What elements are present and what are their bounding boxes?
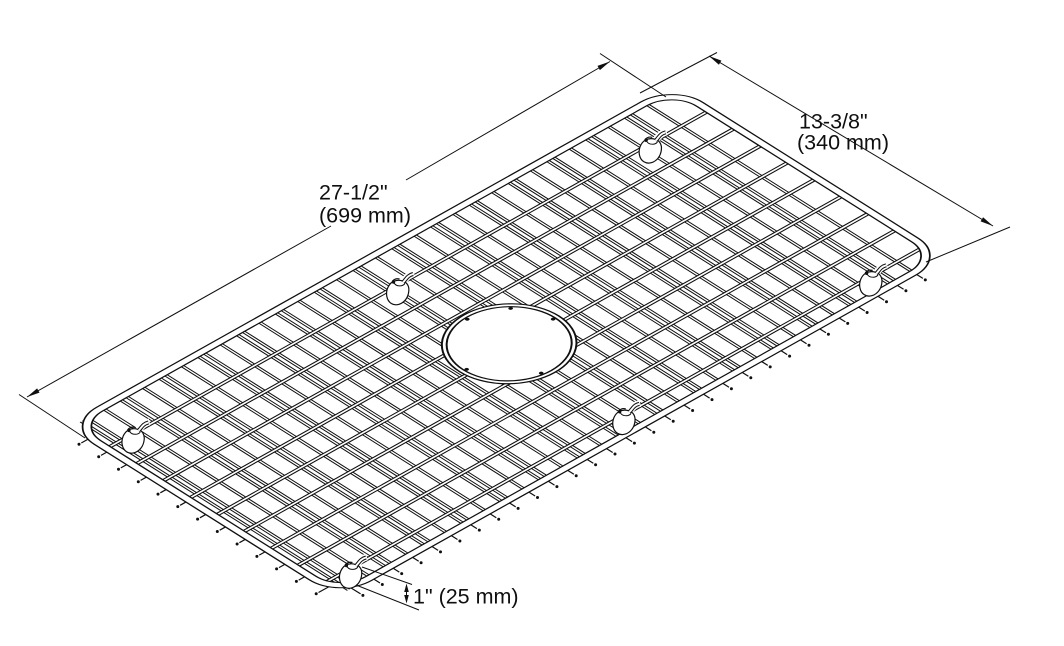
svg-text:(699 mm): (699 mm): [319, 204, 411, 228]
svg-text:1" (25 mm): 1" (25 mm): [413, 585, 519, 609]
svg-text:27-1/2": 27-1/2": [319, 181, 388, 205]
svg-text:(340 mm): (340 mm): [797, 131, 889, 155]
